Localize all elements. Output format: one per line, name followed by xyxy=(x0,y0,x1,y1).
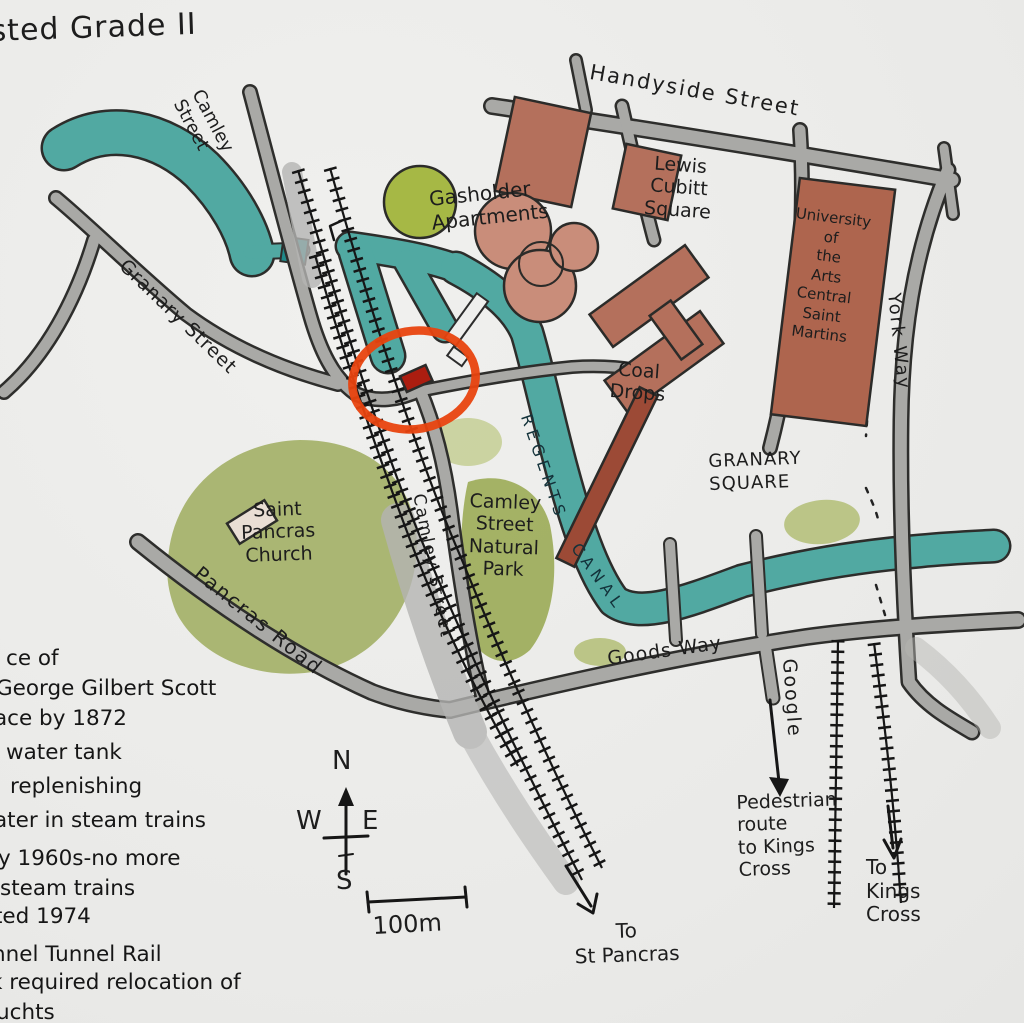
note-line: George Gilbert Scott xyxy=(0,676,216,701)
label-camley-park: Camley Street Natural Park xyxy=(467,490,542,582)
note-line: uchts xyxy=(0,1000,55,1023)
grade-listing-fragment: sted Grade II xyxy=(0,7,197,50)
note-line: replenishing xyxy=(10,774,142,799)
label-to-st-pancras: To St Pancras xyxy=(556,917,698,969)
compass-letter-w: W xyxy=(296,806,322,837)
note-line: nnel Tunnel Rail xyxy=(0,942,162,967)
compass-letter-e: E xyxy=(362,806,378,837)
label-university: University of the Arts Central Saint Mar… xyxy=(763,202,889,351)
note-line: ace by 1872 xyxy=(0,706,127,731)
compass-letter-s: S xyxy=(336,866,353,897)
scale-bar xyxy=(367,887,467,912)
note-line: ted 1974 xyxy=(0,904,91,929)
note-line: ater in steam trains xyxy=(0,808,206,833)
label-lewis-cubitt-square: Lewis Cubitt Square xyxy=(643,152,714,224)
label-coal-drops: Coal Drops xyxy=(609,358,668,407)
scale-label: 100m xyxy=(372,908,443,940)
note-line: k required relocation of xyxy=(0,970,241,995)
label-granary-square: GRANARY SQUARE xyxy=(708,447,803,497)
label-to-kings-cross: To Kings Cross xyxy=(866,856,921,927)
note-line: water tank xyxy=(6,740,122,765)
label-pedestrian-route: Pedestrian route to Kings Cross xyxy=(736,788,839,881)
gasholder-circle-3 xyxy=(550,223,598,271)
note-line: ly 1960s-no more xyxy=(0,846,181,871)
compass-letter-n: N xyxy=(332,746,351,777)
watercolor-map: sted Grade II Camley Street Granary Stre… xyxy=(0,0,1024,1023)
note-line: ce of xyxy=(6,646,59,671)
label-saint-pancras-church: Saint Pancras Church xyxy=(240,497,316,567)
note-line: steam trains xyxy=(0,876,135,901)
